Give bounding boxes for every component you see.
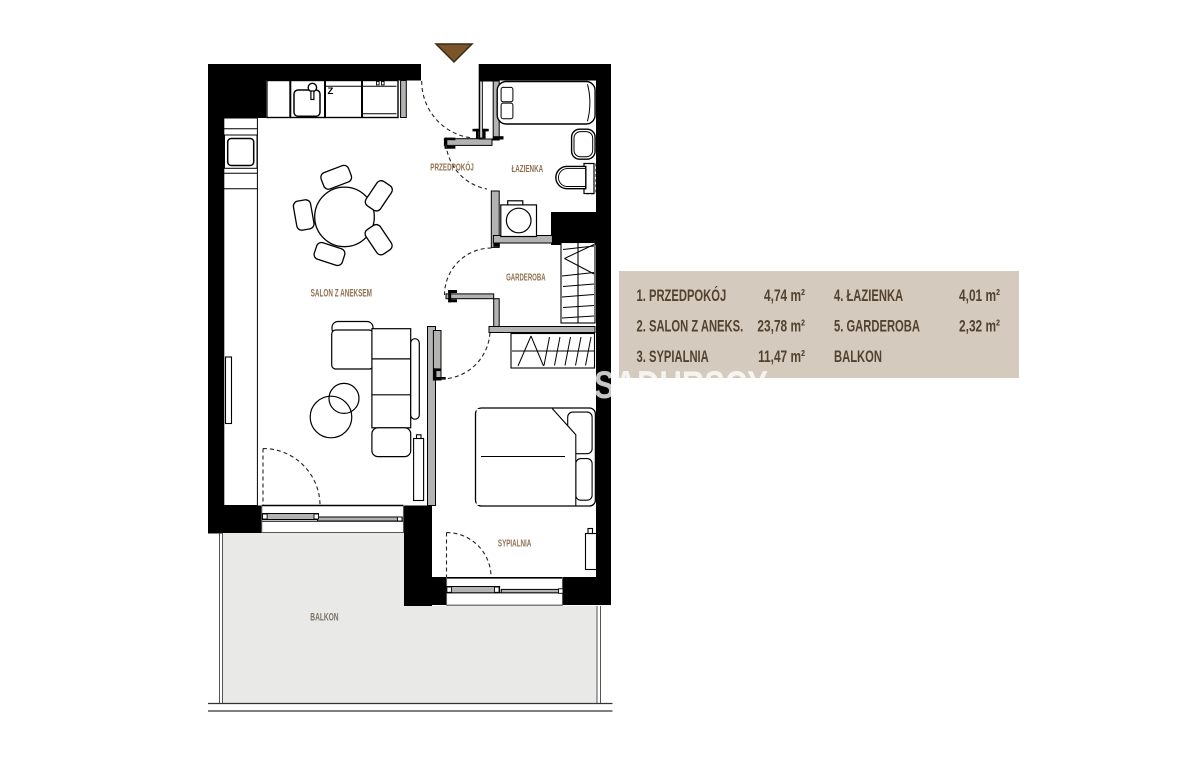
svg-text:4,01 m²: 4,01 m² xyxy=(959,287,1000,306)
svg-text:2,32 m²: 2,32 m² xyxy=(959,318,1000,337)
svg-text:BALKON: BALKON xyxy=(310,611,338,623)
svg-text:2. SALON Z ANEKS.: 2. SALON Z ANEKS. xyxy=(637,317,744,336)
svg-text:SYPIALNIA: SYPIALNIA xyxy=(498,538,531,549)
svg-text:4,74 m²: 4,74 m² xyxy=(764,287,805,306)
svg-text:BALKON: BALKON xyxy=(834,348,882,367)
svg-text:SADURSCY: SADURSCY xyxy=(594,364,768,407)
svg-text:ŁAZIENKA: ŁAZIENKA xyxy=(511,164,543,175)
svg-text:PRZEDPOKÓJ: PRZEDPOKÓJ xyxy=(430,160,474,173)
svg-text:4. ŁAZIENKA: 4. ŁAZIENKA xyxy=(834,287,904,306)
svg-text:SALON Z ANEKSEM: SALON Z ANEKSEM xyxy=(311,286,373,298)
svg-text:GARDEROBA: GARDEROBA xyxy=(506,272,546,283)
svg-text:23,78 m²: 23,78 m² xyxy=(757,318,805,337)
svg-text:5. GARDEROBA: 5. GARDEROBA xyxy=(834,317,920,336)
svg-text:Z: Z xyxy=(328,86,334,97)
svg-text:1. PRZEDPOKÓJ: 1. PRZEDPOKÓJ xyxy=(637,284,727,305)
